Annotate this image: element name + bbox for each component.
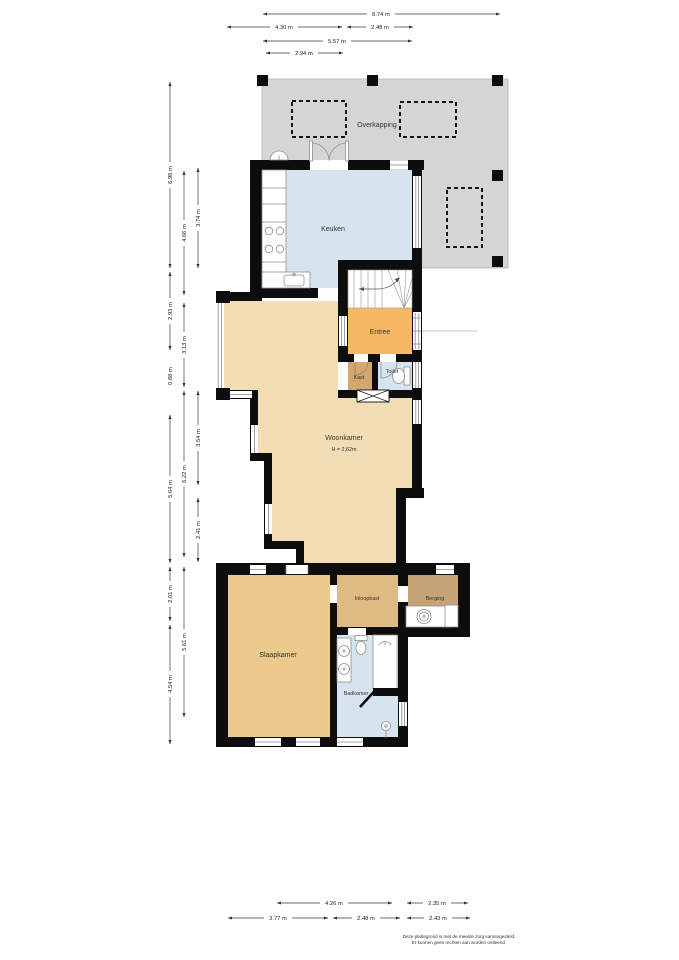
- window: [255, 738, 281, 746]
- wall: [338, 260, 348, 362]
- svg-text:2.48 m: 2.48 m: [371, 25, 389, 31]
- window: [265, 504, 272, 534]
- window: [436, 565, 454, 574]
- label-kast: Kast: [354, 375, 365, 381]
- label-overkapping: Overkapping: [357, 122, 397, 129]
- label-badkamer: Badkamer: [344, 691, 369, 697]
- terrace-post: [492, 170, 503, 181]
- dimension: 6.22 m: [181, 391, 189, 557]
- svg-text:2.48 m: 2.48 m: [357, 916, 375, 922]
- dimension: 8.74 m: [263, 11, 500, 19]
- dimension: 3.54 m: [195, 391, 203, 485]
- svg-text:2.93 m: 2.93 m: [168, 302, 174, 320]
- svg-text:6.22 m: 6.22 m: [182, 465, 188, 483]
- dimensions-left: 6.98 m 2.93 m 0.88 m 5.64 m 2.01 m 4.54 …: [167, 82, 203, 744]
- dimension: 2.94 m: [266, 50, 343, 58]
- svg-text:3.54 m: 3.54 m: [196, 429, 202, 447]
- svg-text:8.74 m: 8.74 m: [372, 12, 390, 18]
- toilet-fixture: [355, 636, 367, 655]
- dimension: 5.57 m: [263, 38, 412, 46]
- svg-text:4.30 m: 4.30 m: [275, 25, 293, 31]
- dimension: 3.13 m: [181, 303, 189, 387]
- door-opening: [330, 585, 337, 603]
- wall: [458, 563, 470, 637]
- svg-text:2.94 m: 2.94 m: [295, 51, 313, 57]
- svg-text:3.13 m: 3.13 m: [182, 336, 188, 354]
- dimension: 5.64 m: [167, 415, 175, 563]
- wall: [250, 453, 272, 461]
- wall: [216, 563, 228, 747]
- wall: [250, 160, 262, 301]
- svg-text:4.66 m: 4.66 m: [182, 224, 188, 242]
- dimension: 4.30 m: [227, 24, 342, 32]
- door-opening: [286, 565, 308, 574]
- door-opening: [398, 586, 408, 602]
- svg-text:5.61 m: 5.61 m: [182, 633, 188, 651]
- svg-text:3.74 m: 3.74 m: [196, 209, 202, 227]
- dimension: 2.35 m: [407, 900, 468, 908]
- wall: [226, 292, 252, 301]
- window: [399, 702, 407, 726]
- floorplan-canvas: Overkapping Keuken Entree Kast Toilet Wo…: [0, 0, 679, 960]
- window: [413, 400, 421, 424]
- svg-text:2.35 m: 2.35 m: [428, 901, 446, 907]
- door-opening: [354, 354, 368, 362]
- wall: [348, 160, 390, 170]
- svg-text:2.41 m: 2.41 m: [196, 521, 202, 539]
- label-toilet: Toilet: [386, 369, 399, 375]
- label-inloopkast: Inloopkast: [355, 596, 380, 602]
- disclaimer-line-1: Deze plattegrond is met de meeste zorg s…: [403, 934, 516, 939]
- dimension: 0.88 m: [167, 363, 175, 389]
- wall: [396, 488, 406, 568]
- window: [337, 738, 363, 746]
- window: [230, 391, 252, 398]
- window: [296, 738, 320, 746]
- interior-opening: [339, 316, 347, 346]
- window: [413, 176, 421, 248]
- dimension: 3.74 m: [195, 168, 203, 268]
- svg-text:0.88 m: 0.88 m: [168, 367, 174, 385]
- door-opening: [380, 354, 396, 362]
- kitchen-counter: [262, 170, 286, 288]
- svg-text:3.77 m: 3.77 m: [269, 916, 287, 922]
- dimension: 6.98 m: [167, 82, 175, 268]
- dimension: 2.48 m: [347, 24, 413, 32]
- dimension: 2.43 m: [407, 915, 470, 923]
- dimension: 3.77 m: [228, 915, 328, 923]
- svg-text:5.57 m: 5.57 m: [328, 39, 346, 45]
- dimension: 2.41 m: [195, 498, 203, 562]
- wall: [330, 627, 408, 635]
- dimension: 4.54 m: [167, 625, 175, 744]
- dimensions-top: 8.74 m 4.30 m 2.48 m 5.57 m 2.94 m: [227, 11, 500, 58]
- kitchen-sink: [262, 272, 310, 288]
- dimension: 4.26 m: [277, 900, 392, 908]
- window: [390, 161, 408, 169]
- window: [250, 565, 266, 574]
- wall: [338, 260, 422, 270]
- dimension: 5.61 m: [181, 567, 189, 717]
- svg-text:4.26 m: 4.26 m: [325, 901, 343, 907]
- terrace-post: [492, 256, 503, 267]
- front-door: [413, 312, 478, 350]
- dimension: 4.66 m: [181, 171, 189, 295]
- label-slaapkamer: Slaapkamer: [259, 652, 297, 659]
- terrace-post: [257, 75, 268, 86]
- meter-box: [357, 390, 389, 402]
- dimensions-bottom: 4.26 m 2.35 m 3.77 m 2.48 m 2.43 m: [228, 900, 470, 923]
- dimension: 2.93 m: [167, 272, 175, 350]
- bathroom-vanity: [337, 638, 351, 682]
- terrace-post: [367, 75, 378, 86]
- label-berging: Berging: [426, 596, 445, 602]
- dimension: 2.48 m: [333, 915, 400, 923]
- label-entree: Entree: [370, 329, 391, 336]
- wall: [372, 362, 378, 390]
- svg-text:5.64 m: 5.64 m: [168, 480, 174, 498]
- disclaimer-line-2: Er kunnen geen rechten aan worden ontlee…: [412, 940, 507, 945]
- label-woonkamer-height: H = 2,62m: [331, 447, 357, 453]
- appliance: [445, 605, 458, 627]
- disclaimer: Deze plattegrond is met de meeste zorg s…: [403, 934, 516, 945]
- svg-text:2.43 m: 2.43 m: [429, 916, 447, 922]
- label-keuken: Keuken: [321, 226, 345, 233]
- window: [251, 425, 258, 453]
- dimension: 2.01 m: [167, 567, 175, 621]
- sliding-door: [215, 303, 224, 388]
- svg-text:4.54 m: 4.54 m: [168, 675, 174, 693]
- terrace-post: [492, 75, 503, 86]
- floorplan-drawing: Overkapping Keuken Entree Kast Toilet Wo…: [0, 0, 679, 960]
- door-opening: [348, 628, 366, 635]
- label-woonkamer: Woonkamer: [325, 435, 363, 442]
- svg-text:2.01 m: 2.01 m: [168, 585, 174, 603]
- svg-text:6.98 m: 6.98 m: [168, 166, 174, 184]
- window: [413, 362, 421, 388]
- wall: [250, 160, 310, 170]
- wall: [262, 288, 318, 298]
